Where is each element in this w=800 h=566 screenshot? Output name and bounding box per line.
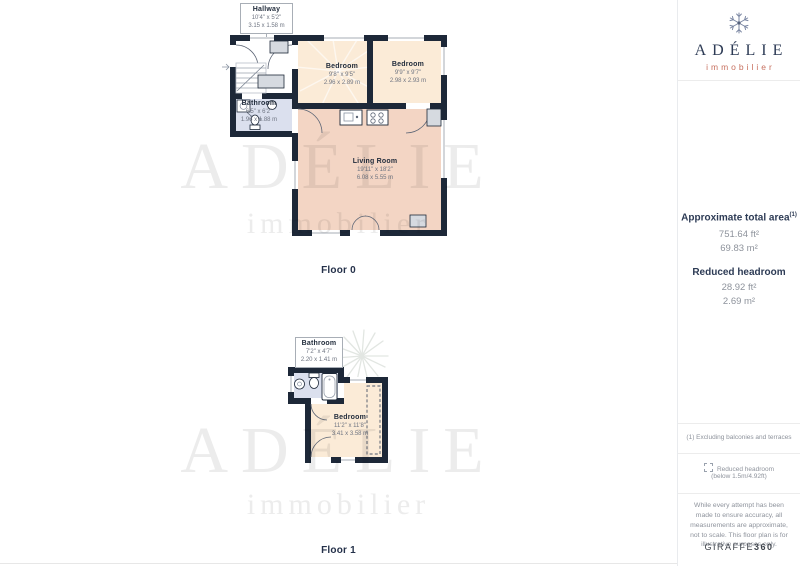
bathroom-callout: Bathroom 7'2" x 4'7" 2.20 x 1.41 m: [295, 337, 343, 368]
room-label-bedroom-1: Bedroom 9'8" x 9'5" 2.96 x 2.89 m: [324, 63, 360, 88]
counter: [427, 109, 441, 126]
floor1-plan: Bathroom 7'2" x 4'7" 2.20 x 1.41 m Bedro…: [283, 330, 407, 474]
total-area-m: 69.83 m²: [678, 243, 800, 254]
total-area-title-text: Approximate total area: [681, 212, 789, 223]
divider: [678, 493, 800, 494]
footnote: (1) Excluding balconies and terraces: [678, 434, 800, 441]
kitchen-stove: [367, 110, 388, 125]
provider-name: GIRAFFE: [704, 542, 754, 552]
total-area-title: Approximate total area(1): [678, 212, 800, 223]
divider: [678, 453, 800, 454]
floor0-label: Floor 0: [0, 265, 677, 276]
doormat: [410, 215, 426, 227]
floorplan-page: Floor 0 Floor 1: [0, 0, 800, 566]
dashed-square-icon: [704, 463, 713, 472]
snowflake-icon: [727, 11, 751, 35]
floor1-label: Floor 1: [0, 545, 677, 556]
brand-name: ADÉLIE: [678, 42, 800, 60]
floor0-plan: Hallway 10'4" x 5'2" 3.15 x 1.58 m Bathr…: [220, 0, 472, 250]
total-area-ft: 751.64 ft²: [678, 229, 800, 240]
legend-label: Reduced headroom: [717, 466, 774, 473]
room-label-bathroom: Bathroom 6'5" x 6'2" 1.96 x 1.88 m: [241, 100, 277, 125]
sidebar: ADÉLIE immobilier Approximate total area…: [677, 0, 800, 566]
toilet: [309, 373, 319, 378]
room-label-bedroom: Bedroom 11'2" x 11'8" 3.41 x 3.58 m: [332, 414, 368, 439]
reduced-headroom-ft: 28.92 ft²: [678, 282, 800, 293]
entrance-arrow-icon: [222, 64, 229, 70]
room-label-bedroom-2: Bedroom 9'9" x 9'7" 2.98 x 2.93 m: [390, 61, 426, 86]
sink: [295, 379, 305, 389]
brand-tagline: immobilier: [678, 62, 800, 72]
legend-detail: (below 1.5m/4.92ft): [678, 473, 800, 480]
provider-logo: GIRAFFE360: [678, 542, 800, 552]
toilet: [250, 125, 260, 130]
reduced-headroom-title: Reduced headroom: [678, 267, 800, 278]
hallway-callout: Hallway 10'4" x 5'2" 3.15 x 1.58 m: [240, 3, 293, 34]
divider: [678, 423, 800, 424]
reduced-headroom-legend: Reduced headroom (below 1.5m/4.92ft): [678, 463, 800, 480]
total-area-note-marker: (1): [790, 212, 797, 218]
brand-logo: ADÉLIE immobilier: [678, 0, 800, 81]
reduced-headroom-m: 2.69 m²: [678, 296, 800, 307]
room-label-living-room: Living Room 19'11" x 18'2" 6.08 x 5.55 m: [353, 158, 398, 183]
kitchen-sink: [340, 110, 362, 125]
provider-suffix: 360: [754, 542, 774, 552]
